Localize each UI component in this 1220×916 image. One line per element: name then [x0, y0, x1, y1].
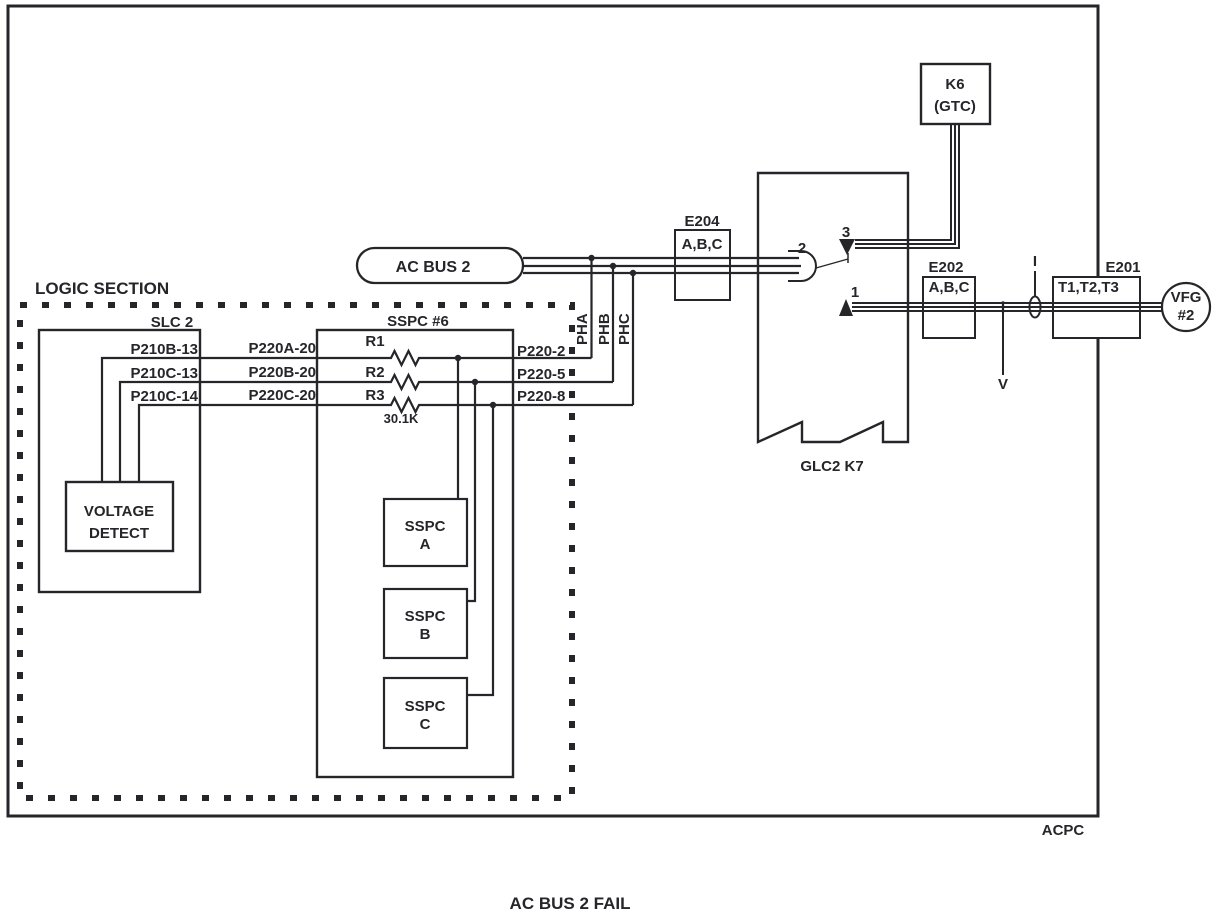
- sspc-b-label-line2: B: [420, 626, 431, 643]
- row1-slc-pin-label: P210B-13: [130, 341, 198, 358]
- contact-1-label: 1: [851, 284, 859, 301]
- phc-label: PHC: [616, 313, 633, 345]
- k6-label-line1: K6: [945, 76, 964, 93]
- sspc6-label: SSPC #6: [387, 313, 449, 330]
- e201-pins-label: T1,T2,T3: [1058, 279, 1119, 296]
- row3-out-pin-label: P220-8: [517, 388, 565, 405]
- row3-junction-dot: [490, 402, 496, 408]
- sspc-b-label-line1: SSPC: [405, 608, 446, 625]
- e202-name-label: E202: [928, 259, 963, 276]
- voltage-tap-dot-a: [1001, 301, 1004, 304]
- voltage-tap-dot-b: [1001, 305, 1004, 308]
- voltage-detect-label-line2: DETECT: [89, 525, 149, 542]
- phb-junction-dot: [610, 263, 616, 269]
- contact-2-label: 2: [798, 240, 806, 257]
- vfg-label-line2: #2: [1178, 307, 1195, 324]
- pha-junction-dot: [588, 255, 594, 261]
- row1-junction-dot: [455, 355, 461, 361]
- sspc-c-label-line2: C: [420, 716, 431, 733]
- slc2-label: SLC 2: [151, 314, 194, 331]
- k6-label-line2: (GTC): [934, 98, 976, 115]
- schematic-page: LOGIC SECTION SLC 2 SSPC #6 P210B-13 P21…: [0, 0, 1220, 916]
- row3-sspc-pin-label: P220C-20: [248, 387, 316, 404]
- sspc-c-label-line1: SSPC: [405, 698, 446, 715]
- pha-label: PHA: [574, 313, 591, 345]
- row1-out-pin-label: P220-2: [517, 343, 565, 360]
- resistor-r1-label: R1: [365, 333, 384, 350]
- k6-wire-1: [855, 124, 951, 240]
- row1-sspc-pin-label: P220A-20: [248, 340, 316, 357]
- row2-sspc-pin-label: P220B-20: [248, 364, 316, 381]
- voltage-tap-dot-c: [1001, 309, 1004, 312]
- k6-wire-2: [855, 124, 955, 244]
- row2-slc-pin-label: P210C-13: [130, 365, 198, 382]
- ac-bus-2-label: AC BUS 2: [396, 259, 471, 276]
- resistor-value-label: 30.1K: [384, 411, 419, 426]
- contact-arm-line: [816, 259, 848, 268]
- row2-out-pin-label: P220-5: [517, 366, 565, 383]
- logic-section-label: LOGIC SECTION: [35, 279, 169, 298]
- contact-1-arrow: [839, 299, 853, 316]
- voltage-meter-label: V: [998, 376, 1008, 393]
- current-meter-label: I: [1033, 253, 1037, 270]
- e204-name-label: E204: [684, 213, 720, 230]
- resistor-r2-label: R2: [365, 364, 384, 381]
- acpc-label: ACPC: [1042, 822, 1085, 839]
- schematic-canvas: LOGIC SECTION SLC 2 SSPC #6 P210B-13 P21…: [0, 0, 1220, 916]
- voltage-detect-label-line1: VOLTAGE: [84, 503, 154, 520]
- e204-pins-label: A,B,C: [682, 236, 723, 253]
- e202-pins-label: A,B,C: [929, 279, 970, 296]
- resistor-r3-label: R3: [365, 387, 384, 404]
- contact-3-arrow: [839, 239, 855, 255]
- vfg-label-line1: VFG: [1171, 289, 1202, 306]
- sspc-a-label-line1: SSPC: [405, 518, 446, 535]
- diagram-title: AC BUS 2 FAIL: [510, 894, 631, 913]
- e201-name-label: E201: [1105, 259, 1140, 276]
- sspc-a-label-line2: A: [420, 536, 431, 553]
- row2-junction-dot: [472, 379, 478, 385]
- contact-3-label: 3: [842, 224, 850, 241]
- k6-box: [921, 64, 990, 124]
- glc2-k7-label: GLC2 K7: [800, 458, 863, 475]
- phb-label: PHB: [596, 313, 613, 345]
- phc-junction-dot: [630, 270, 636, 276]
- row3-slc-pin-label: P210C-14: [130, 388, 198, 405]
